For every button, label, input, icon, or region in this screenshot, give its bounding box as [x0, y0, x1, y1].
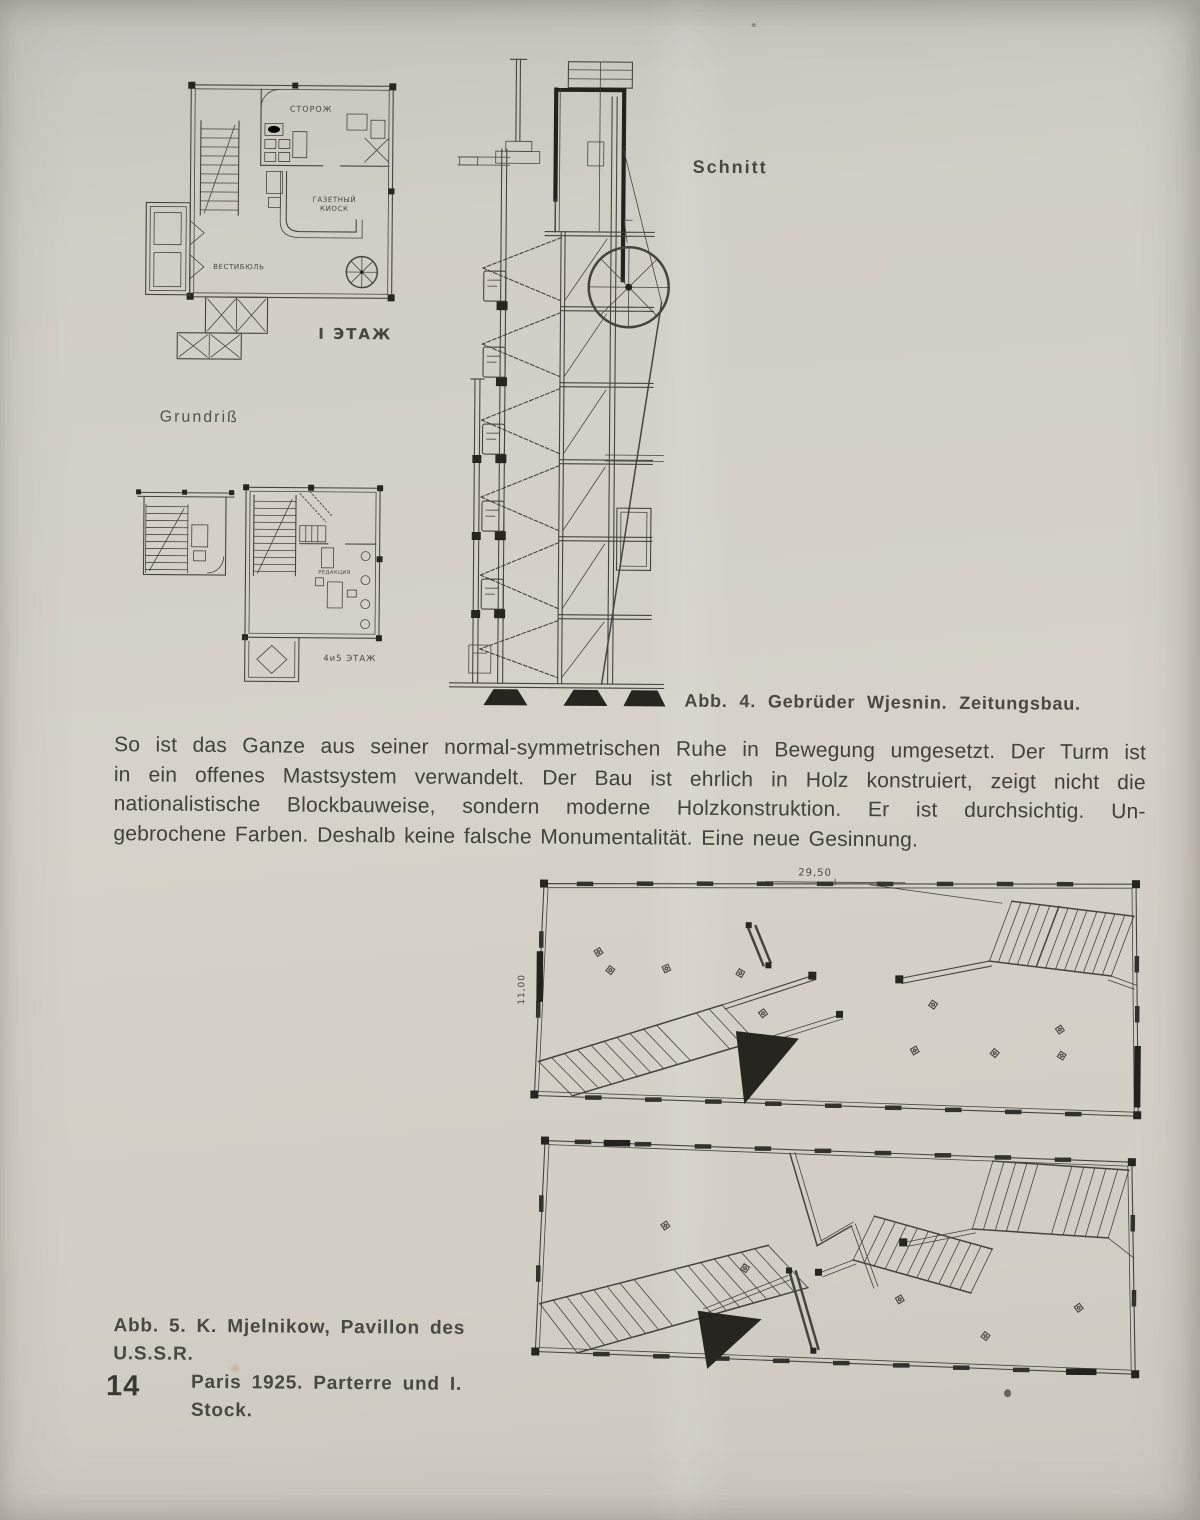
- paper-speck: [1004, 1389, 1011, 1397]
- pavilion-plan-parterre-drawing: 29,50 11,00: [513, 859, 1147, 1126]
- room-label-kiosk-1: ГАЗЕТНЫЙ: [312, 195, 356, 204]
- section-drawing: [445, 49, 680, 719]
- figure5-caption: Abb. 5. K. Mjelnikow, Pavillon des U.S.S…: [113, 1312, 514, 1427]
- floor1-label: I ЭТАЖ: [318, 325, 392, 344]
- paper-stain: [229, 1363, 241, 1374]
- dimension-height-label: 11,00: [517, 974, 527, 1005]
- plan-floor1-drawing: СТОРОЖ ГАЗЕТНЫЙ КИОСК ВЕСТИБЮЛЬ I ЭТАЖ: [143, 72, 405, 362]
- room-label-vestibule: ВЕСТИБЮЛЬ: [213, 263, 265, 271]
- dimension-width-label: 29,50: [798, 868, 832, 879]
- body-paragraph: So ist das Ganze aus seiner normal-symme…: [113, 730, 1146, 856]
- page-number: 14: [106, 1370, 141, 1403]
- paper-speck: [752, 23, 756, 27]
- room-label-kiosk-2: КИОСК: [320, 205, 349, 213]
- page-content: СТОРОЖ ГАЗЕТНЫЙ КИОСК ВЕСТИБЮЛЬ I ЭТАЖ G…: [0, 0, 1200, 1520]
- book-page: СТОРОЖ ГАЗЕТНЫЙ КИОСК ВЕСТИБЮЛЬ I ЭТАЖ G…: [0, 0, 1200, 1520]
- figure4-caption: Abb. 4. Gebrüder Wjesnin. Zeitungsbau.: [684, 691, 1081, 715]
- room-label-editorial: РЕДАКЦИЯ: [318, 570, 350, 576]
- room-label-guard: СТОРОЖ: [290, 105, 333, 114]
- pavilion-plan-first-floor-drawing: [521, 1123, 1145, 1390]
- grundriss-label: Grundriß: [160, 409, 239, 428]
- floor45-label: 4и5 ЭТАЖ: [323, 654, 376, 664]
- schnitt-label: Schnitt: [693, 157, 768, 179]
- plan-floor45-drawing: РЕДАКЦИЯ 4и5 ЭТАЖ: [129, 476, 403, 696]
- figure5-caption-line1: Abb. 5. K. Mjelnikow, Pavillon des U.S.S…: [113, 1312, 513, 1371]
- figure5-caption-line2: Paris 1925. Parterre und I. Stock.: [191, 1369, 513, 1428]
